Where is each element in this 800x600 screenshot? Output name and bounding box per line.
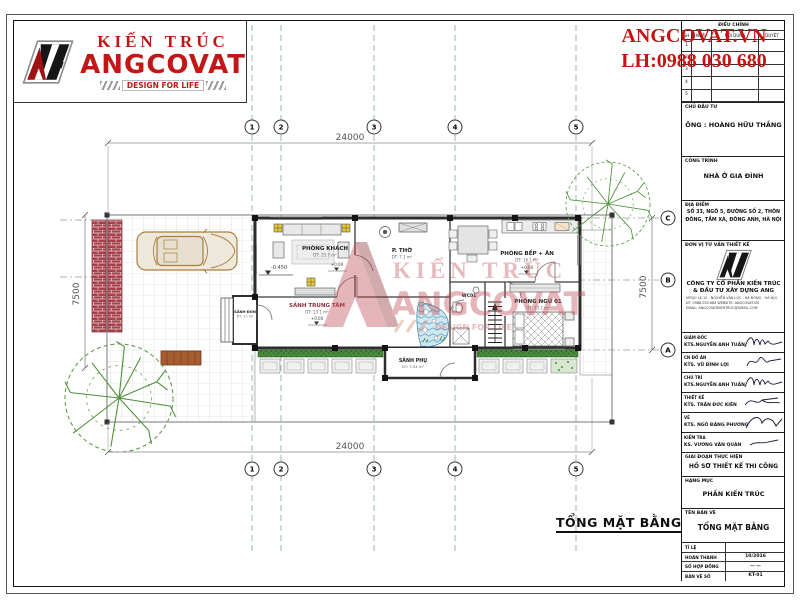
owner-label: CHỦ ĐẦU TƯ — [682, 103, 785, 110]
dim-top: 24000 — [336, 133, 365, 143]
logo-tagline-row: DESIGN FOR LIFE — [100, 80, 226, 91]
grid-bubble-5: 5 — [574, 124, 579, 132]
project-name: NHÀ Ở GIA ĐÌNH — [682, 172, 785, 180]
car — [137, 229, 237, 273]
grid-bubbles-bottom: 1 2 3 4 5 — [245, 462, 583, 476]
meta-row-scale: TỈ LỆ — [682, 543, 785, 553]
signer-row-thietke: THIẾT KẾ KTS. TRẦN ĐỨC KIÊN — [682, 393, 785, 413]
revision-row: 4 — [682, 77, 785, 89]
garden-bench — [161, 351, 201, 365]
logo-title: KIẾN TRÚC — [97, 32, 229, 52]
watermark-line3: DESIGN FOR LIFE — [435, 323, 512, 332]
drawing-name-section: TÊN BẢN VẼ TỔNG MẶT BẰNG — [682, 509, 785, 543]
grid-bubble-a: A — [665, 347, 671, 355]
grid-bubble-2: 2 — [279, 124, 284, 132]
yard-level: -0.450 — [271, 265, 287, 271]
logo-texts: KIẾN TRÚC ANGCOVAT DESIGN FOR LIFE — [80, 32, 246, 91]
angcovat-logo-small-icon — [714, 249, 754, 281]
floor-level-khach: +0.00 — [331, 262, 344, 267]
room-label-phong-tho: P. THỜ — [392, 247, 412, 254]
stripe-icon — [206, 81, 226, 90]
stage-section: GIAI ĐOẠN THỰC HIỆN HỒ SƠ THIẾT KẾ THI C… — [682, 453, 785, 477]
grid-bubble-3b: 3 — [372, 466, 377, 474]
location-label: ĐỊA ĐIỂM — [682, 201, 785, 208]
category-value: PHẦN KIẾN TRÚC — [682, 490, 785, 498]
signature-icon — [742, 433, 784, 452]
revision-row: 5 — [682, 90, 785, 102]
grid-bubble-1b: 1 — [250, 466, 255, 474]
porch-steps — [221, 298, 233, 342]
grid-bubble-3: 3 — [372, 124, 377, 132]
room-label-phong-khach: PHÒNG KHÁCH — [302, 245, 348, 252]
drawing-name-label: TÊN BẢN VẼ — [682, 509, 785, 516]
owner-section: CHỦ ĐẦU TƯ ÔNG : HOÀNG HỮU THẮNG — [682, 103, 785, 157]
stripe-icon — [100, 81, 120, 90]
grid-bubble-5b: 5 — [574, 466, 579, 474]
signer-row-chutri: CHỦ TRÌ KTS.NGUYỄN ANH TUẤN — [682, 373, 785, 393]
watermark-line2: ANGCOVAT — [391, 285, 586, 323]
project-label: CÔNG TRÌNH — [682, 157, 785, 164]
grid-bubble-4b: 4 — [453, 466, 458, 474]
room-area-phong-khach: DT: 25.7 m² — [313, 253, 337, 258]
contact-info: ANGCOVAT.VN LH:0988 030 680 — [596, 24, 792, 74]
grid-bubbles-top: 1 2 3 4 5 — [245, 120, 583, 134]
dim-left: 7500 — [72, 282, 82, 305]
meta-row-sheet-number: BẢN VẼ SỐ KT-01 — [682, 572, 785, 582]
signer-row-cndoan: CN ĐỒ ÁN KTS. VŨ ĐÌNH LỢI — [682, 353, 785, 373]
stage-value: HỒ SƠ THIẾT KẾ THI CÔNG — [682, 463, 785, 470]
grid-bubble-2b: 2 — [279, 466, 284, 474]
room-area-sanh-phu: DT: 3.54 m² — [402, 364, 425, 369]
location-section: ĐỊA ĐIỂM SỐ 33, NGÕ 5, ĐƯỜNG SỐ 2, THÔN … — [682, 201, 785, 241]
signature-icon — [742, 333, 784, 352]
consultant-line3: EMAIL: ANGCOVATKIENTRUC@GMAIL.COM — [686, 306, 785, 311]
angcovat-logo-icon — [22, 30, 74, 94]
signer-row-giamdoc: GIÁM ĐỐC KTS.NGUYỄN ANH TUẤN — [682, 333, 785, 353]
consultant-logo — [682, 249, 785, 281]
room-area-sanh-don: DT: 3.1 m² — [237, 315, 254, 319]
room-area-sanh-trung-tam: DT: 13.1 m² — [305, 310, 329, 315]
grid-bubble-c: C — [665, 215, 670, 223]
logo-brand: ANGCOVAT — [80, 52, 246, 79]
title-block: ĐIỀU CHỈNH SH NGÀY NỘI DUNG DUYỆT 1 2 3 … — [681, 21, 785, 581]
grid-bubble-b: B — [665, 277, 670, 285]
dim-bottom: 24000 — [336, 442, 365, 452]
signature-icon — [742, 353, 784, 372]
phone-text: LH:0988 030 680 — [596, 49, 792, 74]
grid-bubble-4: 4 — [453, 124, 458, 132]
category-section: HẠNG MỤC PHẦN KIẾN TRÚC — [682, 477, 785, 509]
meta-row-finish-date: HOÀN THÀNH 10/2016 — [682, 553, 785, 563]
dim-right: 7500 — [639, 275, 649, 298]
consultant-company: CÔNG TY CỔ PHẦN KIẾN TRÚC & ĐẦU TƯ XÂY D… — [682, 281, 785, 295]
website-text: ANGCOVAT.VN — [596, 24, 792, 49]
logo-tagline: DESIGN FOR LIFE — [122, 80, 204, 91]
signer-row-ve: VẼ KTS. NGÔ ĐĂNG PHƯƠNG — [682, 413, 785, 433]
floor-level-sanh: +0.00 — [311, 316, 324, 321]
stage-label: GIAI ĐOẠN THỰC HIỆN — [682, 453, 785, 460]
entry-porch — [233, 296, 257, 344]
drawing-sheet: KIẾN TRÚC ANGCOVAT DESIGN FOR LIFE ANGCO… — [0, 0, 800, 600]
signature-icon — [742, 393, 784, 412]
signature-icon — [742, 413, 784, 432]
grid-bubbles-rows: C B A — [661, 211, 675, 357]
grid-bubble-1: 1 — [250, 124, 255, 132]
room-label-sanh-don: SẢNH ĐÓN — [234, 309, 256, 314]
signer-row-kiemtra: KIỂM TRA KS. VƯƠNG VĂN QUẢN — [682, 433, 785, 453]
consultant-contacts: VPGD: LK 12 - NGUYỄN VĂN LỘC - HÀ ĐÔNG -… — [682, 295, 785, 311]
category-label: HẠNG MỤC — [682, 477, 785, 484]
meta-row-contract: SỐ HỢP ĐỒNG — — — [682, 562, 785, 572]
room-label-bep-an: PHÒNG BẾP + ĂN — [500, 249, 554, 257]
consultant-section: ĐƠN VỊ TƯ VẤN THIẾT KẾ CÔNG TY CỔ PHẦN K… — [682, 241, 785, 333]
draw-value: TỔNG MẶT BẰNG — [682, 523, 785, 532]
watermark-line1: KIẾN TRÚC — [393, 257, 567, 283]
owner-name: ÔNG : HOÀNG HỮU THẮNG — [682, 121, 785, 129]
signature-icon — [742, 373, 784, 392]
company-logo-box: KIẾN TRÚC ANGCOVAT DESIGN FOR LIFE — [14, 21, 247, 103]
location-value: SỐ 33, NGÕ 5, ĐƯỜNG SỐ 2, THÔN ĐÔNG, TẦM… — [682, 208, 785, 224]
plan-title-label: TỔNG MẶT BẰNG — [556, 515, 682, 533]
project-section: CÔNG TRÌNH NHÀ Ở GIA ĐÌNH — [682, 157, 785, 201]
consultant-label: ĐƠN VỊ TƯ VẤN THIẾT KẾ — [682, 241, 785, 248]
